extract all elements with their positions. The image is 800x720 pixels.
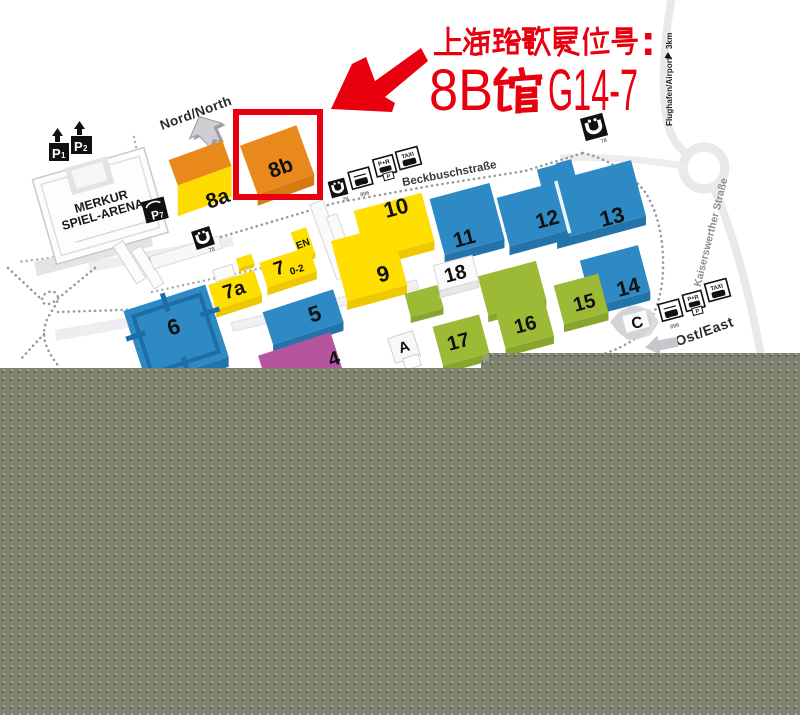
svg-text:2: 2 — [83, 144, 88, 153]
svg-text:Flughafen/Airport: Flughafen/Airport — [665, 57, 674, 126]
svg-text:P: P — [52, 146, 61, 161]
svg-text:P: P — [74, 139, 83, 154]
svg-text:1: 1 — [61, 151, 66, 160]
svg-text:G14-7: G14-7 — [548, 58, 638, 123]
svg-text:8B: 8B — [429, 58, 493, 123]
svg-text:3km: 3km — [665, 33, 674, 49]
